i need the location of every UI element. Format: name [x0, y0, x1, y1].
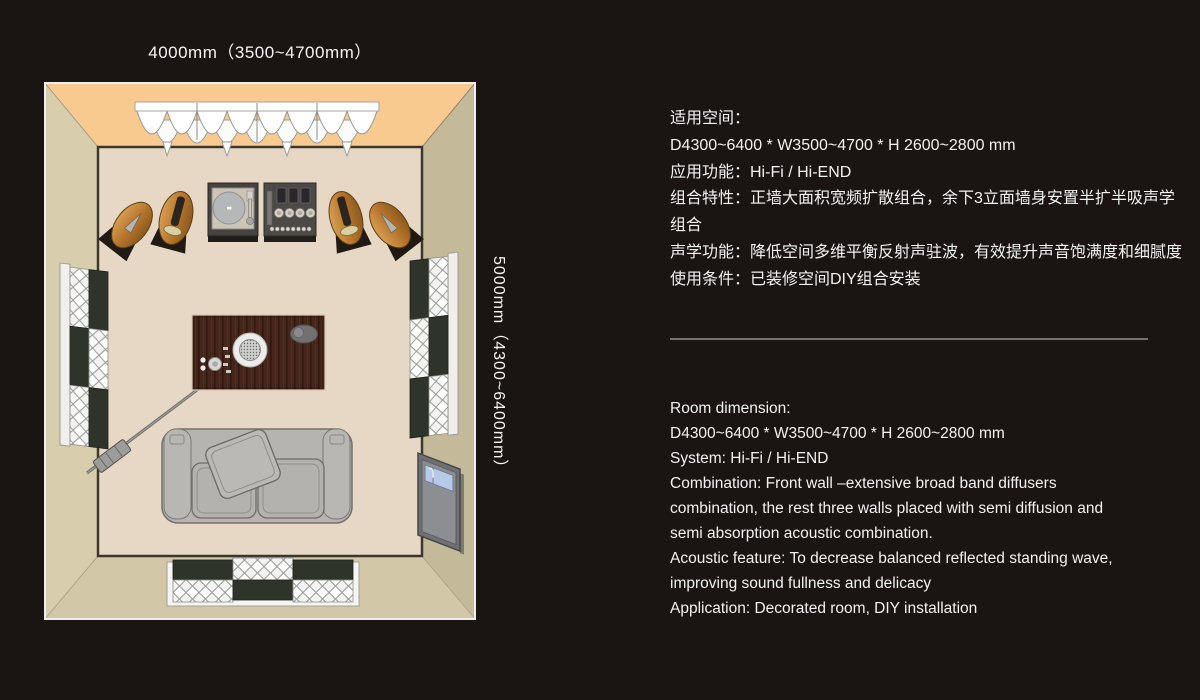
amplifier-icon	[264, 183, 316, 242]
page: 4000mm（3500~4700mm） 5000mm（4300~6400mm）	[0, 0, 1200, 700]
listening-table	[192, 315, 325, 390]
spec-line: Acoustic feature: To decrease balanced r…	[670, 546, 1113, 571]
rear-wall-panel	[167, 558, 359, 606]
spec-line: 组合特性：正墙大面积宽频扩散组合，余下3立面墙身安置半扩半吸声学	[670, 186, 1182, 213]
spec-block-english: Room dimension: D4300~6400 * W3500~4700 …	[670, 396, 1113, 621]
spec-block-chinese: 适用空间： D4300~6400 * W3500~4700 * H 2600~2…	[670, 106, 1182, 294]
spec-line: Room dimension:	[670, 396, 1113, 421]
side-wall-panel-left	[60, 263, 108, 451]
spec-line: semi absorption acoustic combination.	[670, 521, 1113, 546]
spec-line: 应用功能：Hi-Fi / Hi-END	[670, 160, 1182, 187]
spec-line: 使用条件：已装修空间DIY组合安装	[670, 267, 1182, 294]
spec-line: 适用空间：	[670, 106, 1182, 133]
room-width-label: 4000mm（3500~4700mm）	[44, 38, 476, 63]
spec-line: combination, the rest three walls placed…	[670, 496, 1113, 521]
spec-line: D4300~6400 * W3500~4700 * H 2600~2800 mm	[670, 133, 1182, 160]
section-divider	[670, 338, 1148, 340]
room-depth-label: 5000mm（4300~6400mm）	[486, 256, 510, 476]
spec-line: 声学功能：降低空间多维平衡反射声驻波，有效提升声音饱满度和细腻度	[670, 240, 1182, 267]
sofa	[162, 427, 352, 523]
spec-line: Application: Decorated room, DIY install…	[670, 596, 1113, 621]
turntable-icon	[208, 183, 258, 242]
room-floorplan	[44, 82, 476, 620]
spec-line: Combination: Front wall –extensive broad…	[670, 471, 1113, 496]
spec-line: D4300~6400 * W3500~4700 * H 2600~2800 mm	[670, 421, 1113, 446]
spec-line: improving sound fullness and delicacy	[670, 571, 1113, 596]
side-wall-panel-right	[410, 252, 458, 440]
spec-line: System: Hi-Fi / Hi-END	[670, 446, 1113, 471]
spec-line: 组合	[670, 213, 1182, 240]
